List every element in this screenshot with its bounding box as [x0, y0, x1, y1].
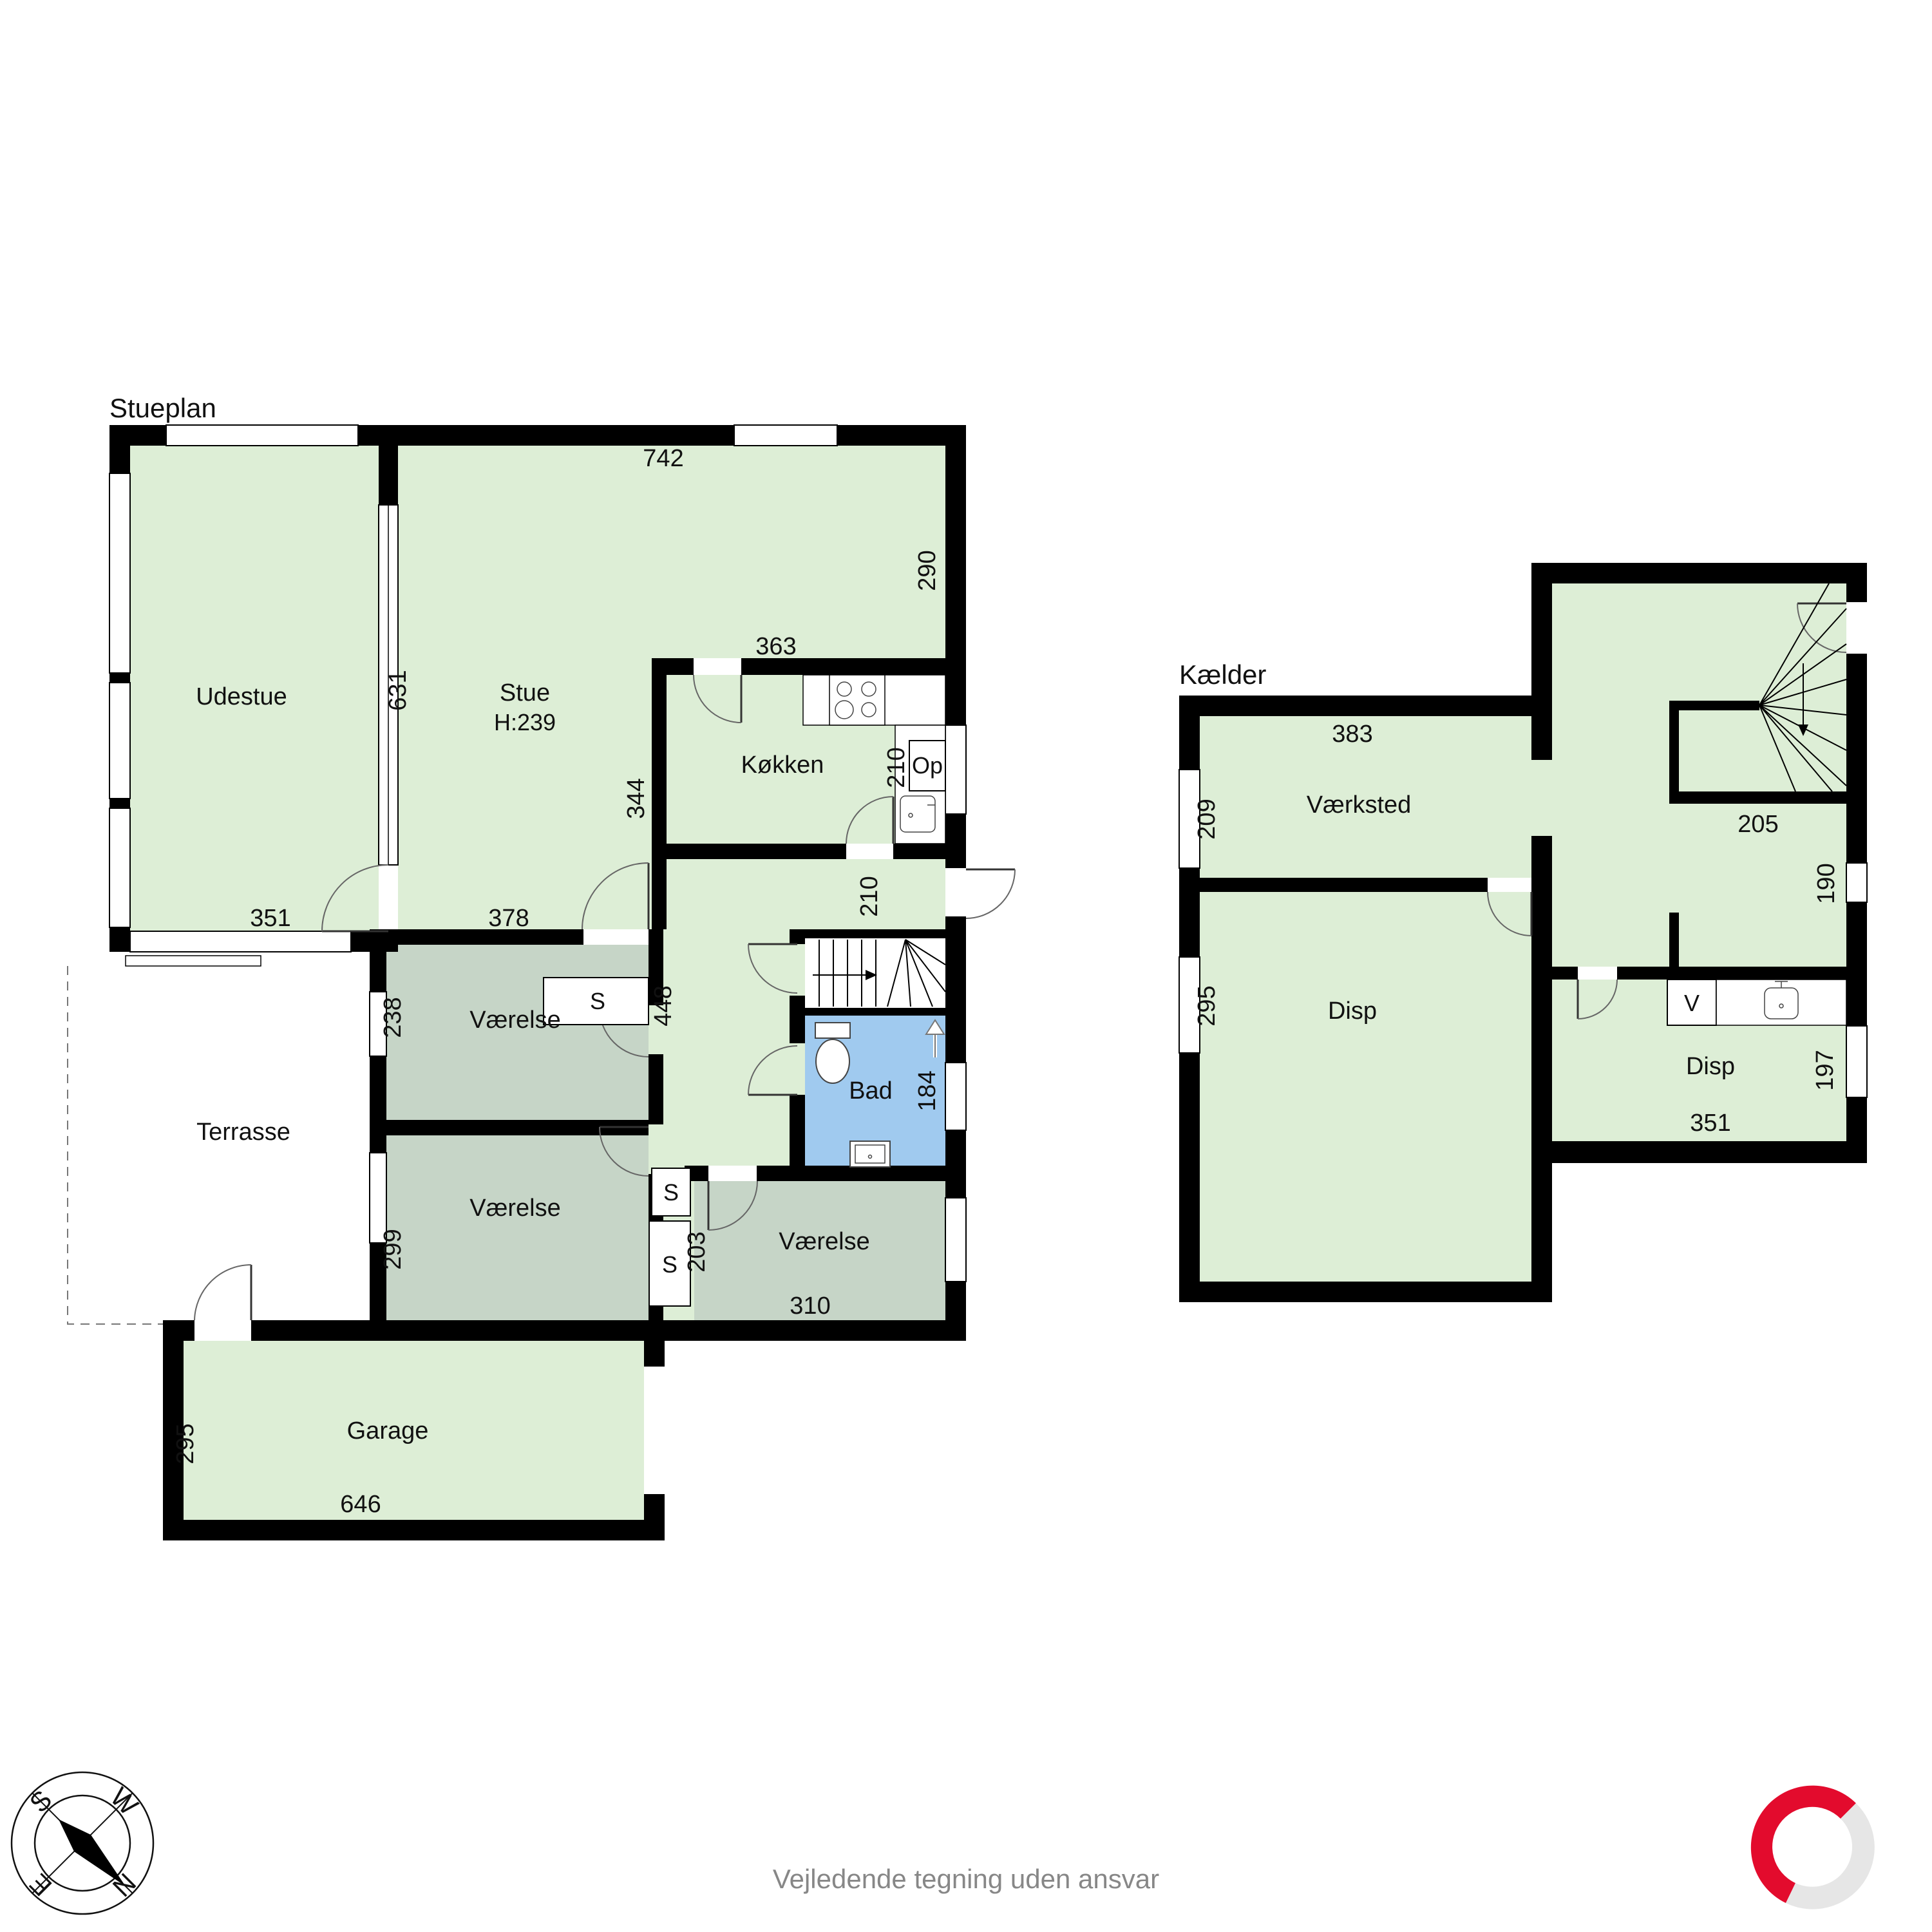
- label-vaerelse-2: Værelse: [469, 1195, 561, 1222]
- label-disp-2: Disp: [1686, 1053, 1735, 1080]
- dim-363: 363: [755, 633, 796, 660]
- logo-gray-arc: [1786, 1803, 1875, 1909]
- wall-segment: [1669, 701, 1759, 710]
- door-swing: [966, 869, 1015, 918]
- door-opening: [708, 1166, 757, 1181]
- dim-742: 742: [643, 445, 683, 472]
- wall-segment: [251, 1320, 966, 1341]
- wall-segment: [741, 658, 945, 675]
- dim-290: 290: [914, 550, 941, 591]
- window: [166, 425, 358, 446]
- dim-238: 238: [379, 997, 406, 1037]
- dim-351-basement: 351: [1690, 1110, 1730, 1137]
- wall-segment: [1531, 583, 1552, 708]
- wall-segment: [805, 1008, 945, 1016]
- wall-segment: [644, 1341, 665, 1367]
- label-vaerelse-1: Værelse: [469, 1007, 561, 1034]
- wall-segment: [379, 446, 398, 505]
- dim-190: 190: [1813, 863, 1840, 904]
- wall-segment: [1531, 708, 1552, 760]
- dim-203: 203: [683, 1231, 710, 1272]
- door-opening: [945, 868, 966, 916]
- stove-icon: [829, 675, 885, 725]
- label-garage: Garage: [347, 1417, 429, 1444]
- wall-segment: [1846, 563, 1867, 602]
- closet-s3-label: S: [662, 1251, 677, 1278]
- dim-448: 448: [650, 985, 677, 1026]
- door-opening: [194, 1320, 251, 1341]
- wall-segment: [109, 931, 130, 952]
- door-garage-terrace: [194, 1265, 251, 1341]
- wall-segment: [757, 1166, 945, 1181]
- terrace-step: [126, 956, 261, 966]
- window: [130, 931, 351, 952]
- wall-segment: [1552, 967, 1578, 980]
- wall-segment: [1617, 967, 1846, 980]
- wall-segment: [1531, 836, 1552, 892]
- label-disp-1: Disp: [1328, 998, 1377, 1025]
- wall-segment: [790, 996, 805, 1043]
- wall-segment: [370, 929, 583, 945]
- wall-segment: [790, 929, 805, 944]
- label-stue: Stue: [500, 679, 550, 706]
- door-opening: [1488, 878, 1531, 892]
- dim-295-garage: 295: [172, 1423, 199, 1464]
- wall-segment: [1669, 913, 1679, 967]
- dim-209: 209: [1193, 799, 1220, 839]
- wall-segment: [667, 844, 846, 859]
- wall-segment: [1200, 878, 1488, 892]
- closet-v-label: V: [1684, 990, 1700, 1016]
- floorplan-drawing: Stueplan: [0, 0, 1932, 1932]
- op-label: Op: [912, 752, 943, 779]
- window: [109, 808, 130, 927]
- label-udestue: Udestue: [196, 683, 287, 710]
- door-opening: [846, 844, 893, 859]
- window: [1846, 863, 1867, 902]
- window: [109, 473, 130, 673]
- dim-310: 310: [790, 1293, 830, 1320]
- dim-210-hall: 210: [856, 876, 883, 916]
- logo-icon: [1751, 1786, 1875, 1909]
- dim-295: 295: [1193, 985, 1220, 1026]
- wall-segment: [1179, 868, 1200, 957]
- wall-segment: [1179, 1053, 1200, 1302]
- label-kokken: Køkken: [741, 752, 824, 779]
- dim-210-kitchen: 210: [883, 747, 910, 788]
- door-opening: [1846, 602, 1867, 654]
- door-swing: [194, 1265, 251, 1320]
- label-vaerelse-3: Værelse: [779, 1228, 870, 1255]
- room-disp-1: [1200, 892, 1531, 1282]
- wall-segment: [1179, 696, 1552, 716]
- wall-segment: [1669, 701, 1679, 804]
- wall-segment: [1531, 563, 1867, 583]
- wall-segment: [1531, 892, 1552, 1302]
- wall-segment: [370, 929, 386, 992]
- toilet-tank: [815, 1023, 850, 1038]
- label-terrasse: Terrasse: [196, 1119, 290, 1146]
- wall-segment: [1846, 654, 1867, 863]
- compass-rose-icon: S W N E: [12, 1772, 153, 1914]
- door-opening: [583, 929, 649, 945]
- label-bad: Bad: [849, 1077, 893, 1104]
- door-opening: [694, 658, 741, 675]
- wall-segment: [1846, 902, 1867, 1026]
- basement-plan: Kælder: [1179, 563, 1867, 1302]
- wall-segment: [649, 1054, 663, 1124]
- wall-segment: [805, 929, 945, 938]
- room-vaerelse-2: [386, 1135, 649, 1320]
- dim-646: 646: [340, 1491, 381, 1518]
- window: [945, 725, 966, 814]
- terrace-boundary: [68, 966, 163, 1324]
- dim-351: 351: [250, 905, 290, 932]
- window: [945, 1063, 966, 1130]
- dim-184: 184: [914, 1070, 941, 1111]
- wall-segment: [644, 1494, 665, 1520]
- toilet-icon: [816, 1039, 849, 1083]
- closet-s1-label: S: [590, 988, 605, 1014]
- wall-segment: [1179, 1282, 1552, 1302]
- label-vaerksted: Værksted: [1307, 791, 1412, 819]
- ground-floor-title: Stueplan: [109, 393, 216, 423]
- closet-s2-label: S: [663, 1179, 679, 1206]
- dim-344: 344: [623, 778, 650, 819]
- dim-378: 378: [488, 905, 529, 932]
- wall-segment: [370, 1056, 386, 1153]
- dim-205: 205: [1738, 811, 1778, 838]
- label-stue-height: H:239: [494, 709, 556, 735]
- entrance-door: [945, 868, 1015, 918]
- ground-floor-plan: Stueplan: [68, 393, 1015, 1540]
- disclaimer-text: Vejledende tegning uden ansvar: [773, 1864, 1159, 1894]
- wall-segment: [893, 844, 945, 859]
- wall-segment: [652, 658, 694, 675]
- dim-631: 631: [384, 670, 412, 710]
- wall-segment: [652, 675, 667, 929]
- wall-segment: [790, 1095, 805, 1166]
- window: [109, 683, 130, 799]
- dim-197: 197: [1812, 1050, 1839, 1090]
- wall-segment: [1179, 716, 1200, 770]
- window: [945, 1198, 966, 1282]
- basement-title: Kælder: [1179, 659, 1266, 690]
- window: [734, 425, 837, 446]
- basement-hall-area: [1531, 583, 1846, 967]
- dim-299: 299: [379, 1229, 406, 1269]
- window: [1846, 1026, 1867, 1097]
- wall-segment: [1669, 791, 1846, 804]
- floorplan-page: Stueplan: [0, 0, 1932, 1932]
- wall-segment: [163, 1520, 665, 1540]
- dim-383: 383: [1332, 721, 1372, 748]
- basement-fixtures: V: [1667, 980, 1846, 1025]
- wall-segment: [1531, 1141, 1867, 1163]
